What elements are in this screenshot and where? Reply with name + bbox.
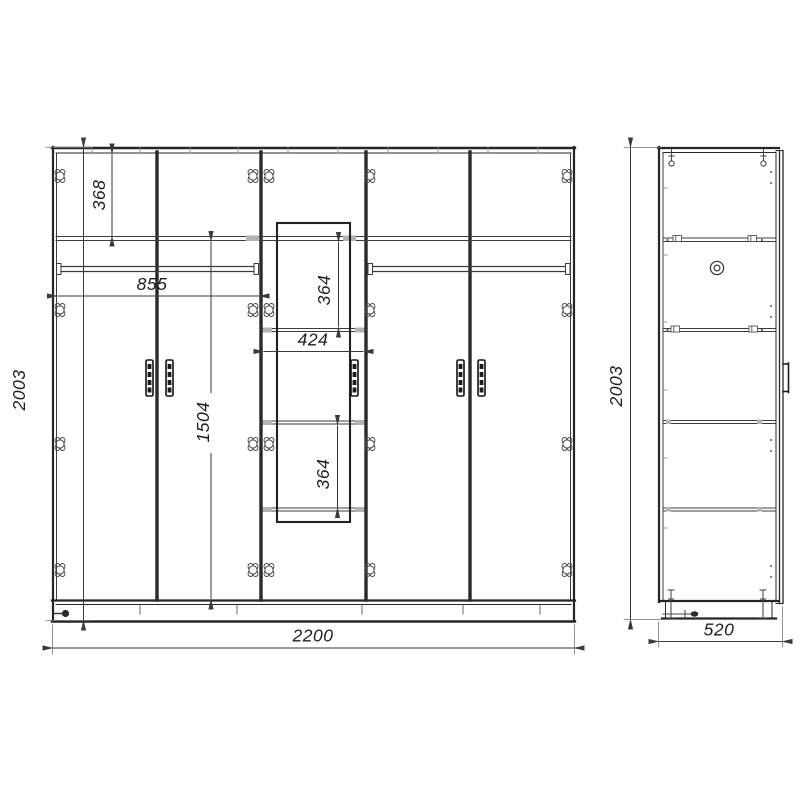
top-shelf: [56, 236, 571, 242]
front-hinges: [55, 169, 572, 576]
dim-label-side-depth: 520: [704, 620, 735, 640]
dim-label-middle-lower: 364: [313, 459, 333, 490]
dim-label-below-shelf: 1504: [193, 402, 213, 443]
side-shelves: [663, 236, 776, 512]
dim-label-left-section: 855: [137, 274, 168, 294]
rod-end-circle: [710, 261, 723, 274]
door1-handle: [146, 360, 153, 396]
front-view: 2003 368 855 1504 364 424 364 2200: [9, 147, 575, 654]
door5-handle: [478, 360, 485, 396]
dim-label-top-shelf: 368: [89, 180, 109, 211]
back-panel-ticks: [663, 188, 667, 528]
front-carcass: [52, 147, 575, 622]
dim-label-middle-width: 424: [298, 330, 329, 350]
technical-drawing-canvas: 2003 368 855 1504 364 424 364 2200: [0, 0, 800, 800]
door4-handle: [457, 360, 464, 396]
side-door-handle: [783, 363, 789, 393]
dim-label-middle-upper: 364: [314, 275, 334, 306]
side-plinth: [662, 590, 776, 619]
plinth: [54, 605, 540, 617]
side-hinge-marks: [770, 171, 772, 578]
technical-drawing-page: 2003 368 855 1504 364 424 364 2200: [0, 0, 800, 800]
side-view: 2003 520: [606, 147, 789, 647]
dim-label-side-height: 2003: [606, 366, 626, 408]
door-handles: [146, 360, 485, 396]
side-front-foot: [759, 590, 767, 618]
side-foot-screw: [663, 611, 698, 618]
door2-handle: [166, 360, 173, 396]
dim-label-front-width: 2200: [292, 626, 334, 646]
door3-handle: [351, 360, 358, 396]
dim-label-front-height: 2003: [9, 370, 29, 412]
door-dividers: [157, 152, 470, 600]
front-foot-bolt: [54, 610, 69, 617]
side-carcass: [658, 147, 783, 604]
side-top-bolts: [669, 149, 766, 166]
